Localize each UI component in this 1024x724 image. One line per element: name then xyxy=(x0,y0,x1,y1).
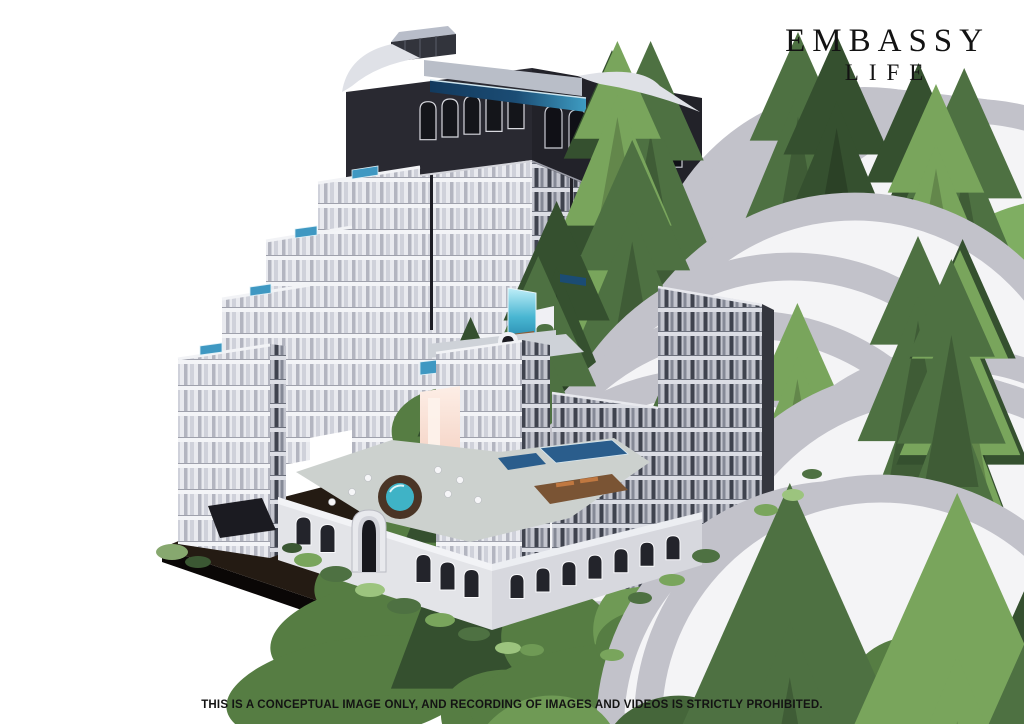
entrance-arch xyxy=(352,510,386,572)
conceptual-render-page: EMBASSY LIFE THIS IS A CONCEPTUAL IMAGE … xyxy=(0,0,1024,724)
building-illustration xyxy=(0,0,1024,724)
disclaimer-text: THIS IS A CONCEPTUAL IMAGE ONLY, AND REC… xyxy=(0,699,1024,711)
brand-logo: EMBASSY LIFE xyxy=(778,24,990,85)
brand-logo-line2: LIFE xyxy=(778,61,990,85)
brand-logo-line1: EMBASSY xyxy=(778,24,990,59)
